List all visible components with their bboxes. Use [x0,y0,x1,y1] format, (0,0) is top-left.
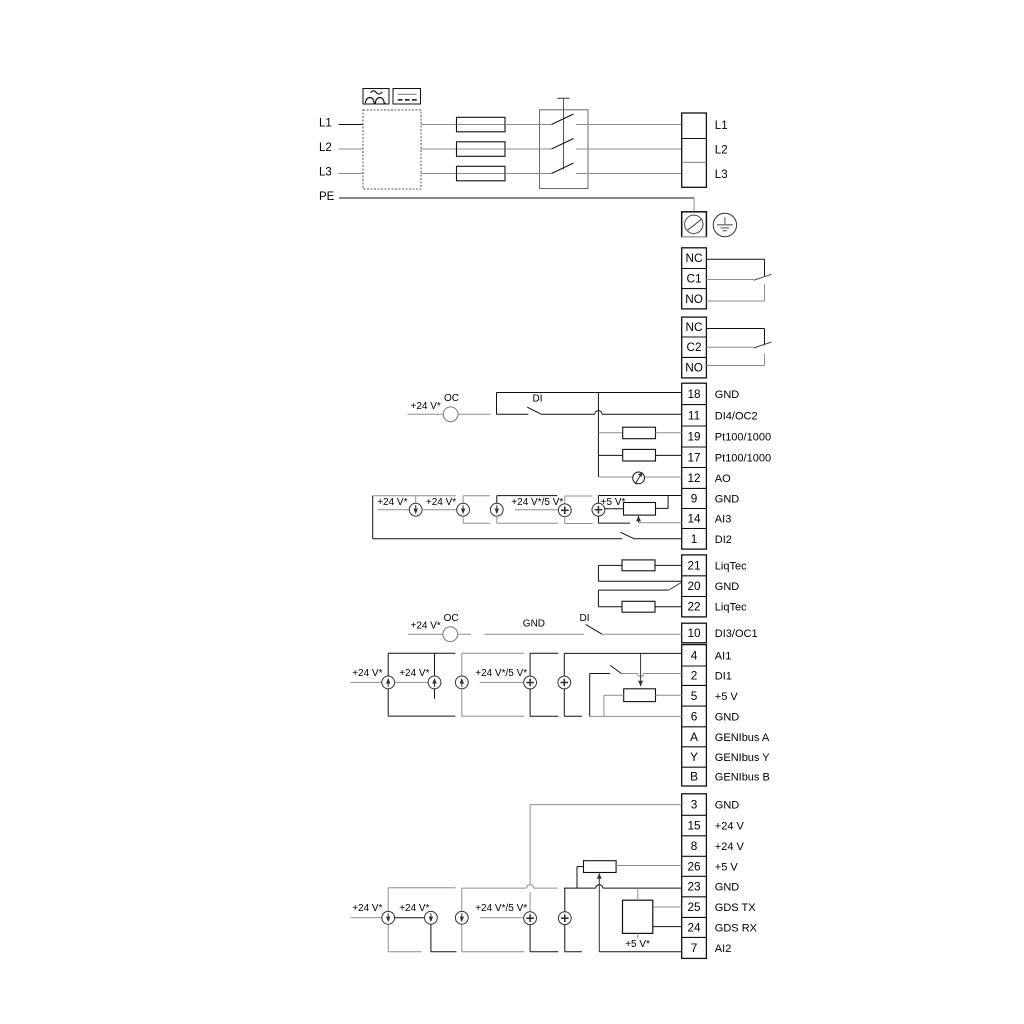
svg-text:+5 V: +5 V [715,861,739,873]
svg-text:+24 V*: +24 V* [411,621,441,632]
svg-text:L3: L3 [715,169,728,181]
svg-text:GND: GND [715,711,740,723]
svg-text:DI: DI [533,394,543,405]
svg-text:AI3: AI3 [715,514,732,526]
svg-text:LiqTec: LiqTec [715,560,747,572]
svg-text:+5 V*: +5 V* [601,497,626,508]
svg-text:C1: C1 [687,272,702,286]
svg-text:NO: NO [685,292,703,306]
svg-text:OC: OC [444,393,459,404]
svg-text:18: 18 [687,387,701,401]
svg-text:2: 2 [691,669,698,683]
svg-text:17: 17 [687,450,700,464]
svg-text:3: 3 [691,798,698,812]
svg-text:+24 V*: +24 V* [352,668,382,679]
svg-text:15: 15 [687,819,701,833]
svg-text:+24 V*: +24 V* [411,401,441,412]
svg-text:L1: L1 [319,117,332,129]
svg-text:+24 V*/5 V*: +24 V*/5 V* [475,668,527,679]
svg-text:6: 6 [691,709,698,723]
svg-text:20: 20 [687,579,701,593]
svg-text:NC: NC [686,320,704,334]
svg-text:8: 8 [691,839,698,853]
svg-text:GENIbus A: GENIbus A [715,732,770,744]
svg-text:AI1: AI1 [715,650,732,662]
svg-text:GENIbus Y: GENIbus Y [715,752,770,764]
svg-text:DI3/OC1: DI3/OC1 [715,628,758,640]
svg-text:+24 V*: +24 V* [377,497,407,508]
svg-text:GND: GND [715,581,740,593]
svg-text:+24 V*: +24 V* [426,497,456,508]
svg-text:9: 9 [691,491,698,505]
svg-text:A: A [690,730,698,744]
svg-text:1: 1 [691,532,698,546]
svg-text:GND: GND [715,800,740,812]
svg-text:Pt100/1000: Pt100/1000 [715,432,771,444]
svg-text:4: 4 [691,648,698,662]
svg-text:+24 V: +24 V [715,821,745,833]
svg-text:12: 12 [687,471,700,485]
svg-text:19: 19 [687,430,700,444]
svg-text:21: 21 [687,558,700,572]
svg-text:L2: L2 [319,142,332,154]
svg-text:GDS RX: GDS RX [715,922,758,934]
svg-text:7: 7 [691,941,698,955]
svg-text:DI: DI [580,613,590,624]
svg-text:24: 24 [687,920,701,934]
svg-text:DI4/OC2: DI4/OC2 [715,410,758,422]
svg-text:Pt100/1000: Pt100/1000 [715,452,771,464]
svg-text:AO: AO [715,473,731,485]
svg-text:26: 26 [687,859,701,873]
svg-text:+24 V*: +24 V* [399,903,429,914]
svg-text:25: 25 [687,900,701,914]
svg-text:GENIbus B: GENIbus B [715,772,770,784]
svg-text:AI2: AI2 [715,943,732,955]
svg-text:C2: C2 [687,340,702,354]
svg-text:+5 V: +5 V [715,691,739,703]
svg-text:B: B [690,770,698,784]
svg-text:14: 14 [687,512,701,526]
svg-text:+5 V*: +5 V* [625,939,650,950]
svg-text:NO: NO [685,361,703,375]
svg-text:LiqTec: LiqTec [715,602,747,614]
svg-text:OC: OC [444,613,459,624]
svg-text:GND: GND [715,493,740,505]
svg-text:23: 23 [687,880,701,894]
svg-text:10: 10 [687,626,701,640]
svg-text:Y: Y [690,750,698,764]
svg-text:L3: L3 [319,166,332,178]
svg-text:DI1: DI1 [715,671,732,683]
svg-text:PE: PE [319,191,335,203]
svg-text:+24 V*: +24 V* [352,903,382,914]
svg-text:DI2: DI2 [715,534,732,546]
svg-text:GND: GND [715,882,740,894]
svg-text:L2: L2 [715,145,728,157]
svg-text:GDS TX: GDS TX [715,902,756,914]
svg-text:11: 11 [688,408,700,422]
svg-text:GND: GND [523,618,545,629]
svg-text:+24 V*: +24 V* [399,668,429,679]
svg-text:GND: GND [715,389,740,401]
svg-text:L1: L1 [715,120,728,132]
svg-text:5: 5 [691,689,698,703]
svg-text:+24 V: +24 V [715,841,745,853]
svg-text:NC: NC [686,251,704,265]
svg-text:+24 V*/5 V*: +24 V*/5 V* [511,497,563,508]
svg-text:22: 22 [687,600,700,614]
svg-text:+24 V*/5 V*: +24 V*/5 V* [475,903,527,914]
